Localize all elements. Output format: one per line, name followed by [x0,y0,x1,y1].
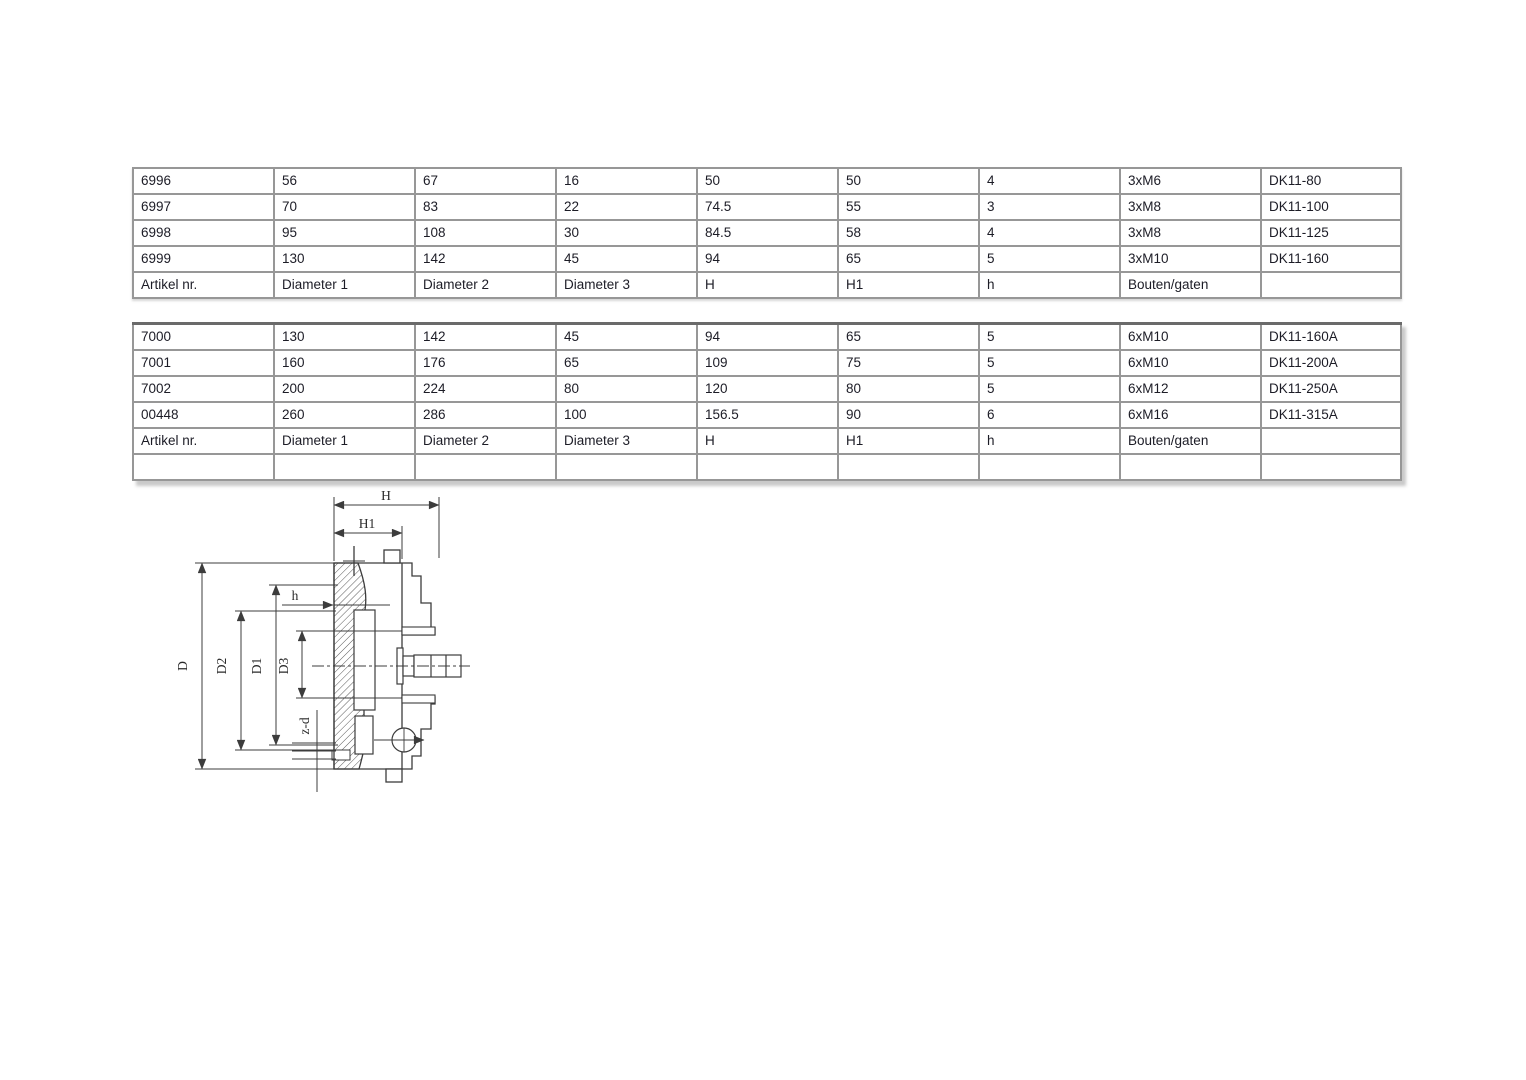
table-row: Artikel nr.Diameter 1Diameter 2Diameter … [133,428,1401,454]
table-cell: 7000 [133,324,274,351]
table-cell: Diameter 1 [274,272,415,298]
table-cell: 109 [697,350,838,376]
table-cell: Artikel nr. [133,428,274,454]
table-cell: H1 [838,272,979,298]
table-cell [838,454,979,480]
table-cell: 108 [415,220,556,246]
table-row: 7001160176651097556xM10DK11-200A [133,350,1401,376]
table-cell: 7001 [133,350,274,376]
table-cell: 4 [979,220,1120,246]
table-cell: H1 [838,428,979,454]
table-cell: 6xM12 [1120,376,1261,402]
table-cell: 50 [838,168,979,194]
table-cell: H [697,272,838,298]
table-cell: 7002 [133,376,274,402]
table-cell [697,454,838,480]
table-cell: 94 [697,324,838,351]
table-cell: Bouten/gaten [1120,272,1261,298]
document-page: 6996566716505043xM6DK11-80699770832274.5… [0,0,1526,1080]
table-cell: DK11-80 [1261,168,1401,194]
table-cell: Diameter 2 [415,428,556,454]
table-cell: 6xM16 [1120,402,1261,428]
table-cell: 6xM10 [1120,324,1261,351]
dim-label-H: H [381,488,391,503]
table-cell: 3xM10 [1120,246,1261,272]
table-cell: Bouten/gaten [1120,428,1261,454]
table-cell: Diameter 3 [556,272,697,298]
table-row: Artikel nr.Diameter 1Diameter 2Diameter … [133,272,1401,298]
table-cell: 75 [838,350,979,376]
table-cell: 80 [556,376,697,402]
table-row: 699913014245946553xM10DK11-160 [133,246,1401,272]
table-cell: 65 [556,350,697,376]
table-cell: 16 [556,168,697,194]
table-cell: 3xM8 [1120,194,1261,220]
dim-label-H1: H1 [359,516,376,531]
table-cell: DK11-160 [1261,246,1401,272]
table-cell: 50 [697,168,838,194]
table-cell [1261,272,1401,298]
table-cell: 30 [556,220,697,246]
table-cell: 130 [274,324,415,351]
table-cell [1261,454,1401,480]
table-cell: DK11-250A [1261,376,1401,402]
table-cell: 45 [556,324,697,351]
table-cell: 5 [979,324,1120,351]
table-cell: 286 [415,402,556,428]
table-cell: 224 [415,376,556,402]
table-cell: 6999 [133,246,274,272]
table-cell: DK11-125 [1261,220,1401,246]
spec-table-1: 6996566716505043xM6DK11-80699770832274.5… [132,167,1402,299]
table-cell: 4 [979,168,1120,194]
table-cell: 5 [979,376,1120,402]
table-cell: 6996 [133,168,274,194]
chuck-technical-drawing: H H1 h D D2 D1 D3 z-d [162,470,474,810]
table-cell: 5 [979,246,1120,272]
table-cell: 90 [838,402,979,428]
table-cell: H [697,428,838,454]
table-cell: 5 [979,350,1120,376]
table-cell: 84.5 [697,220,838,246]
table-cell: 74.5 [697,194,838,220]
table-cell [556,454,697,480]
table-row: 700013014245946556xM10DK11-160A [133,324,1401,351]
table-cell: 3xM8 [1120,220,1261,246]
table-cell: 142 [415,324,556,351]
table-cell: 56 [274,168,415,194]
table-cell: 260 [274,402,415,428]
table-cell: h [979,272,1120,298]
table-cell: DK11-160A [1261,324,1401,351]
table-cell: DK11-200A [1261,350,1401,376]
table-cell: 22 [556,194,697,220]
table-cell: 65 [838,246,979,272]
table-cell: 130 [274,246,415,272]
spec-table-2: 700013014245946556xM10DK11-160A700116017… [132,322,1402,481]
table-cell: 160 [274,350,415,376]
table-cell: DK11-100 [1261,194,1401,220]
table-cell: Diameter 2 [415,272,556,298]
table-cell: 70 [274,194,415,220]
table-row: 699770832274.55533xM8DK11-100 [133,194,1401,220]
table-cell: 6 [979,402,1120,428]
table-cell: 100 [556,402,697,428]
table-cell: 200 [274,376,415,402]
table-cell: 00448 [133,402,274,428]
dim-label-D1: D1 [249,658,264,675]
table-cell: Diameter 3 [556,428,697,454]
table-cell [1120,454,1261,480]
table-cell: 58 [838,220,979,246]
table-row: 6998951083084.55843xM8DK11-125 [133,220,1401,246]
table-row: 7002200224801208056xM12DK11-250A [133,376,1401,402]
table-cell: 83 [415,194,556,220]
table-cell: 3 [979,194,1120,220]
table-cell: 55 [838,194,979,220]
dim-label-D2: D2 [214,658,229,675]
dim-label-D3: D3 [276,658,291,675]
pinion-detail [374,728,424,752]
table-cell: 6998 [133,220,274,246]
table-cell: 65 [838,324,979,351]
table-cell: Diameter 1 [274,428,415,454]
table-cell: 94 [697,246,838,272]
table-cell: 80 [838,376,979,402]
table-cell: 156.5 [697,402,838,428]
table-cell: 142 [415,246,556,272]
table-cell: 176 [415,350,556,376]
table-cell: h [979,428,1120,454]
dim-label-h: h [292,588,299,603]
table-cell [979,454,1120,480]
table-row: 00448260286100156.59066xM16DK11-315A [133,402,1401,428]
table-cell: 95 [274,220,415,246]
table-cell: Artikel nr. [133,272,274,298]
table-cell: 45 [556,246,697,272]
table-cell: 67 [415,168,556,194]
table-cell: 6997 [133,194,274,220]
table-cell: DK11-315A [1261,402,1401,428]
table-cell [1261,428,1401,454]
dim-label-zd: z-d [297,717,312,734]
table-cell: 120 [697,376,838,402]
dim-label-D: D [175,661,190,671]
table-row: 6996566716505043xM6DK11-80 [133,168,1401,194]
table-cell: 3xM6 [1120,168,1261,194]
table-cell: 6xM10 [1120,350,1261,376]
